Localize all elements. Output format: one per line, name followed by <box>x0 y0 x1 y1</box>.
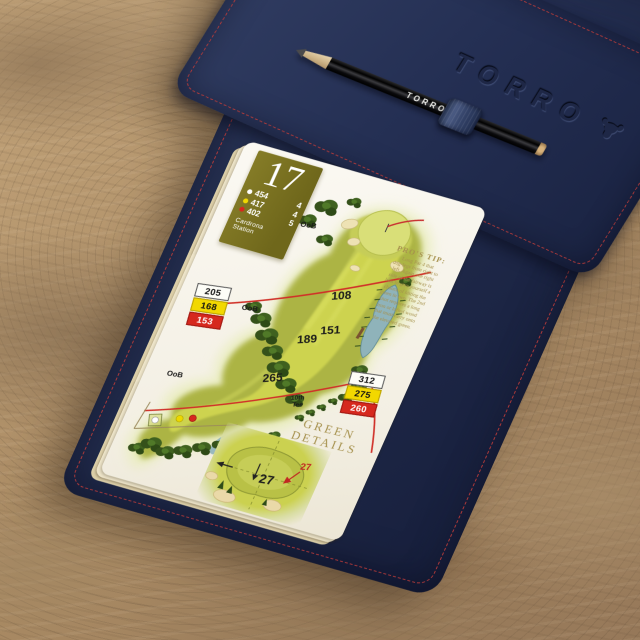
tenth-tee-line2: Tee <box>292 402 304 409</box>
pin-depth-label: 27 <box>299 462 312 473</box>
oob-label-top: OoB <box>299 220 318 231</box>
red-tee-dot <box>238 206 245 212</box>
distance-label-108: 108 <box>331 290 352 303</box>
yellow-tee-dot <box>242 198 249 204</box>
distance-label-151: 151 <box>320 325 341 338</box>
tee-par: 5 <box>287 219 295 229</box>
tenth-tee-line1: 10th <box>291 395 305 402</box>
stone-background: TORRO TORRO <box>0 0 640 640</box>
distance-label-265: 265 <box>262 372 283 385</box>
oob-label-mid: OoB <box>241 303 260 314</box>
distance-label-189: 189 <box>297 334 318 347</box>
oob-label-lower: OoB <box>166 369 185 380</box>
white-tee-dot <box>246 189 253 195</box>
golf-holder-group: TORRO TORRO <box>0 0 640 640</box>
